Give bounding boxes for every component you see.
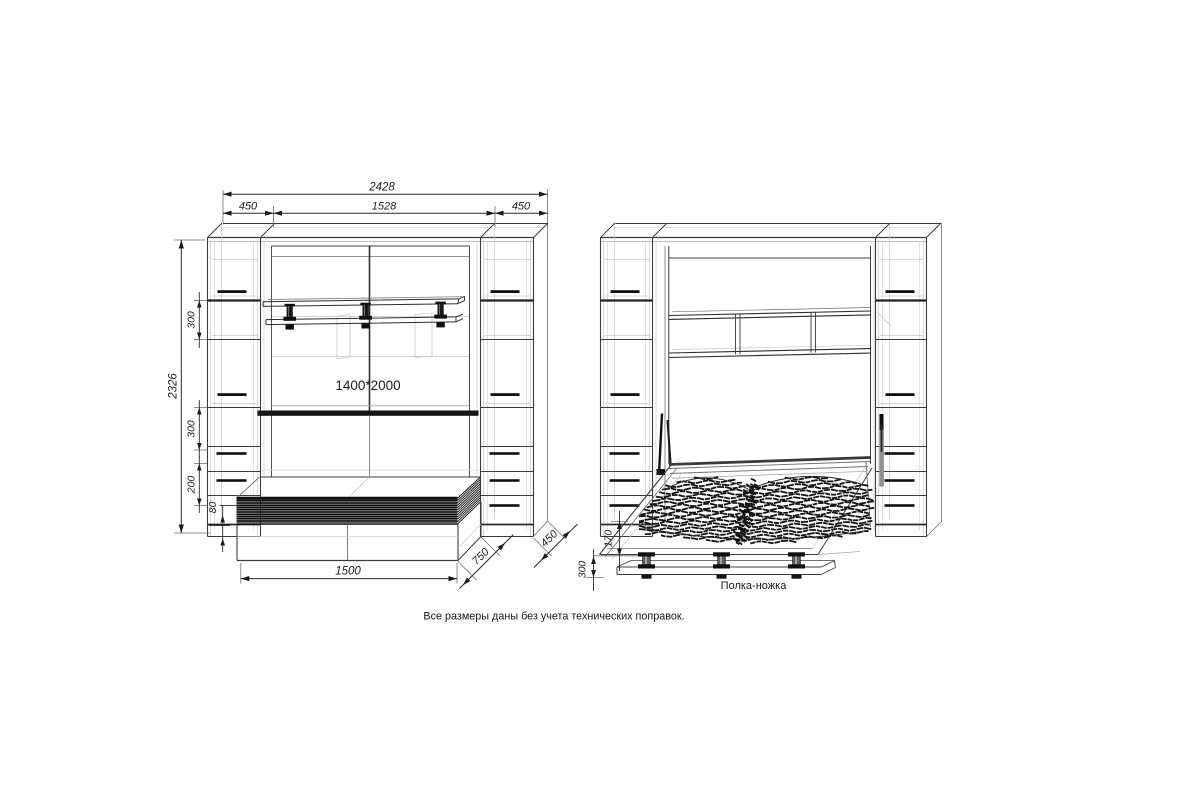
svg-text:200: 200 [185, 476, 197, 495]
svg-text:1500: 1500 [335, 566, 361, 578]
svg-text:2428: 2428 [368, 182, 395, 194]
svg-text:Все размеры даны без учета тех: Все размеры даны без учета технических п… [423, 611, 684, 623]
svg-text:170: 170 [603, 530, 615, 548]
svg-text:300: 300 [185, 420, 197, 438]
svg-text:1400*2000: 1400*2000 [335, 378, 400, 393]
svg-text:450: 450 [512, 201, 531, 213]
svg-text:2326: 2326 [168, 373, 180, 400]
svg-text:450: 450 [239, 201, 258, 213]
svg-text:1528: 1528 [372, 201, 397, 213]
svg-text:Полка-ножка: Полка-ножка [721, 580, 788, 592]
svg-text:300: 300 [577, 561, 589, 579]
svg-text:300: 300 [185, 311, 197, 329]
svg-text:80: 80 [207, 502, 219, 514]
